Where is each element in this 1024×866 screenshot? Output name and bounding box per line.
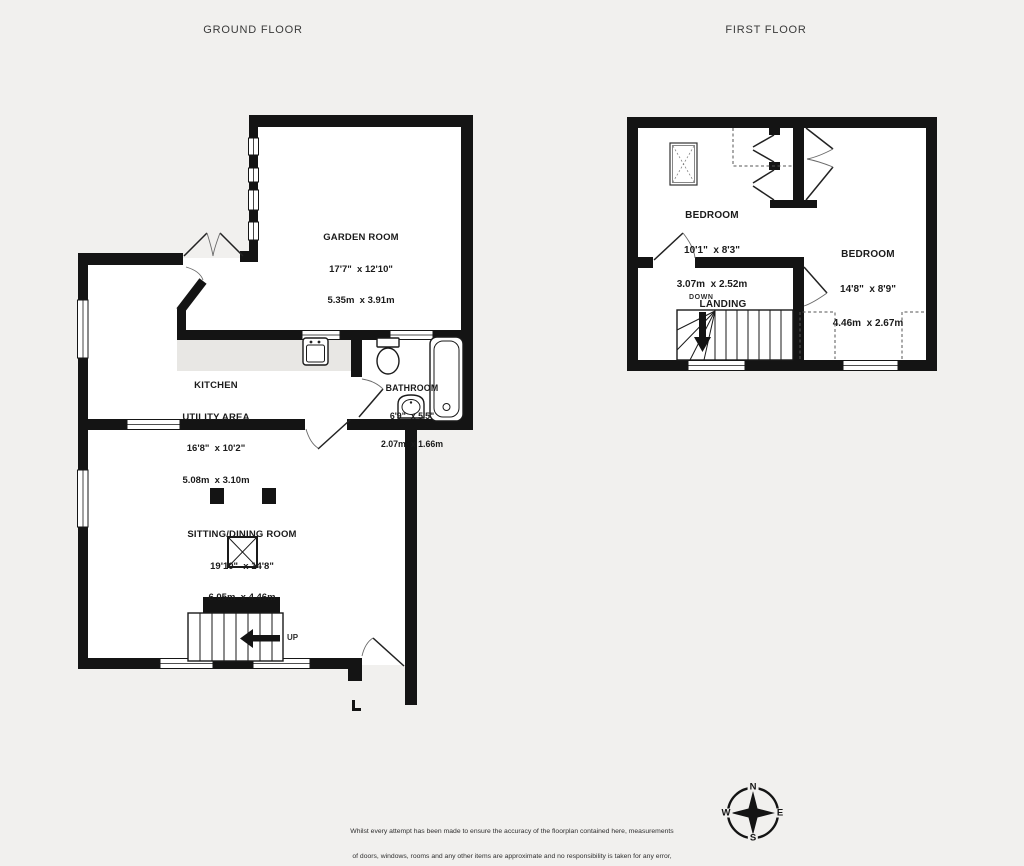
- column: [262, 488, 276, 504]
- room-size-metric: 2.07m x 1.66m: [381, 440, 443, 449]
- landing-label: LANDING: [700, 276, 747, 334]
- room-size-imperial: 10'1" x 8'3": [677, 245, 748, 257]
- room-name: BEDROOM: [833, 249, 904, 261]
- disclaimer-text: Whilst every attempt has been made to en…: [132, 812, 892, 866]
- garden-room-label: GARDEN ROOM 17'7" x 12'10" 5.35m x 3.91m: [323, 212, 399, 328]
- first-floor-title: FIRST FLOOR: [725, 24, 806, 36]
- room-name: GARDEN ROOM: [323, 233, 399, 244]
- floorplan-drawing: [0, 0, 1024, 866]
- room-size-imperial: 6'9" x 5'5": [381, 412, 443, 421]
- room-size-metric: 5.35m x 3.91m: [323, 296, 399, 307]
- stairs-up-label: UP: [287, 633, 298, 642]
- room-name: SITTING/DINING ROOM: [187, 530, 296, 541]
- room-size-metric: 5.08m x 3.10m: [182, 476, 249, 487]
- stairs-down-label: DOWN: [689, 294, 714, 301]
- room-name: BATHROOM: [381, 384, 443, 393]
- room-name: BEDROOM: [677, 210, 748, 222]
- room-name-line2: UTILITY AREA: [182, 413, 249, 424]
- ground-floor-title: GROUND FLOOR: [203, 24, 302, 36]
- room-size-metric: 4.46m x 2.67m: [833, 318, 904, 330]
- sitting-dining-room-label: SITTING/DINING ROOM 19'10" x 14'8" 6.05m…: [187, 509, 296, 625]
- floorplan-page: GROUND FLOOR FIRST FLOOR GARDEN ROOM 17'…: [0, 0, 1024, 866]
- bathroom-label: BATHROOM 6'9" x 5'5" 2.07m x 1.66m: [381, 366, 443, 467]
- room-name: KITCHEN: [182, 381, 249, 392]
- room-size-imperial: 16'8" x 10'2": [182, 444, 249, 455]
- room-size-imperial: 14'8" x 8'9": [833, 284, 904, 296]
- room-size-metric: 6.05m x 4.46m: [187, 593, 296, 604]
- disclaimer-line: Whilst every attempt has been made to en…: [132, 828, 892, 836]
- skylight-window: [670, 143, 697, 185]
- room-size-imperial: 19'10" x 14'8": [187, 562, 296, 573]
- compass-north-label: N: [748, 783, 759, 792]
- kitchen-sink: [303, 338, 328, 365]
- disclaimer-line: of doors, windows, rooms and any other i…: [132, 853, 892, 861]
- kitchen-label: KITCHEN UTILITY AREA 16'8" x 10'2" 5.08m…: [182, 360, 249, 507]
- room-size-imperial: 17'7" x 12'10": [323, 265, 399, 276]
- bedroom2-label: BEDROOM 14'8" x 8'9" 4.46m x 2.67m: [833, 226, 904, 353]
